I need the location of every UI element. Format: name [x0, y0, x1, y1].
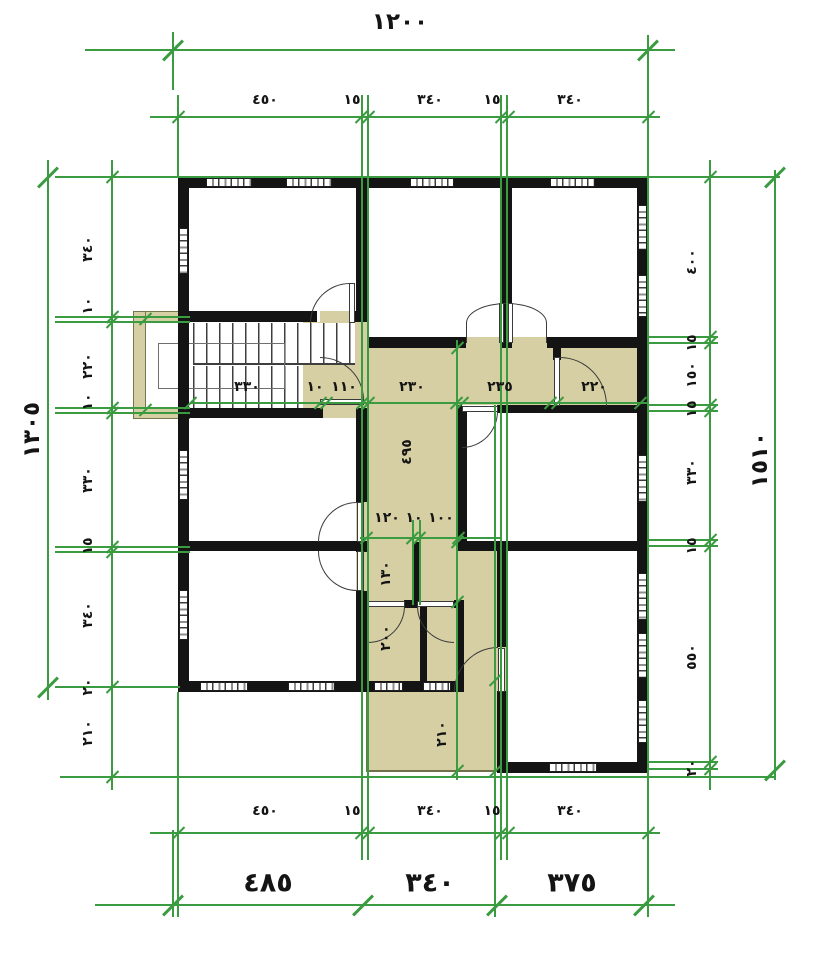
- window-bath-2: [423, 682, 451, 691]
- dim-label: ٢١٠: [80, 720, 96, 746]
- gridline-x648: [647, 35, 649, 917]
- wall-roomC-bottom: [456, 541, 637, 551]
- dim-label: ١٥٠: [684, 362, 700, 388]
- dim-label: ١١٠: [331, 379, 357, 395]
- dim-label: ١٥: [483, 92, 500, 108]
- dim-label: ١٠: [306, 379, 323, 395]
- dim-label: ١٣٠: [378, 561, 394, 587]
- window-left-2: [179, 450, 188, 500]
- dim-label: ٣٤٠: [80, 602, 96, 628]
- extline-left-2a: [55, 407, 190, 409]
- dimline-right-total: [774, 170, 776, 780]
- porch-outline-bottom: [366, 770, 497, 772]
- dim-label: ٣٣٠: [80, 467, 96, 493]
- extline-left-2b: [55, 412, 190, 414]
- dim-label: ١٥: [483, 803, 500, 819]
- dim-label: ٢٣٥: [487, 379, 513, 395]
- dim-label: ١٠: [80, 393, 96, 410]
- dim-label: ٢٠: [684, 759, 700, 776]
- dim-label-left-total: ١٣٠٥: [19, 402, 45, 458]
- window-right-1: [638, 205, 647, 250]
- dim-label-bottom-total: ٣٧٥: [547, 868, 596, 899]
- wall-roomAB-divider: [189, 541, 356, 551]
- door-arc-room1: [310, 283, 350, 323]
- gridline-x507: [506, 95, 508, 860]
- window-right-3: [638, 455, 647, 502]
- dim-label: ٣٤٠: [557, 803, 583, 819]
- dim-label: ١٥: [343, 803, 360, 819]
- window-top-4: [550, 178, 595, 187]
- door-arc-roomB: [318, 551, 357, 591]
- door-arc-roomC: [462, 411, 498, 448]
- window-bottom-1: [200, 682, 248, 691]
- dim-label: ١٠: [80, 297, 96, 314]
- window-top-2: [286, 178, 332, 187]
- dim-label: ١٥: [684, 537, 700, 554]
- wall-stairhall-bottom: [189, 408, 323, 418]
- door-arc-roomA: [318, 502, 357, 542]
- dim-label: ٣٤٠: [417, 92, 443, 108]
- dimline-bottom-total: [95, 904, 675, 906]
- dim-label: ٢٢٠: [581, 379, 607, 395]
- window-right-5: [638, 633, 647, 678]
- dim-label: ٤٠٠: [684, 249, 700, 275]
- dim-label-hall-length: ٤٩٥: [399, 439, 415, 465]
- window-bottom-2: [288, 682, 335, 691]
- dim-label: ٢٠: [80, 678, 96, 695]
- dim-label: ٢٠٠: [378, 625, 394, 651]
- window-top-3: [410, 178, 454, 187]
- floor-plan-canvas: ١٢٠٠ ٤٥٠ ١٥ ٣٤٠ ١٥ ٣٤٠ ١٣٠٥ ٣٤٠ ١٠ ٢٢٠ ١…: [0, 0, 828, 963]
- window-roomD-bottom: [549, 763, 597, 772]
- dim-label: ٤٥٠: [252, 803, 278, 819]
- dimline-corridor: [190, 402, 648, 404]
- dim-label: ١٥: [80, 537, 96, 554]
- dim-label: ٢٣٠: [399, 379, 425, 395]
- dim-label: ١٥: [343, 92, 360, 108]
- dim-label: ١٥: [684, 400, 700, 417]
- gridline-x178-top: [177, 95, 179, 177]
- wall-room1-bottom-stub: [353, 311, 367, 322]
- dim-label: ٣٤٠: [417, 803, 443, 819]
- dim-label-right-total: ١٥١٠: [747, 432, 773, 488]
- door-leaf-double-b: [508, 303, 513, 343]
- extline-left-3b: [55, 551, 190, 553]
- window-bath-1: [374, 682, 403, 691]
- left-landing-side: [133, 311, 146, 419]
- dimline-bottom-row: [150, 832, 660, 834]
- dim-label: ٤٥٠: [252, 92, 278, 108]
- corridor-east-fill: [456, 348, 637, 405]
- dim-label-bottom-total: ٤٨٥: [243, 868, 292, 899]
- dim-label: ٣٣٠: [234, 379, 260, 395]
- window-left-1: [179, 228, 188, 274]
- dim-label: ١٠٠: [428, 510, 454, 526]
- extline-left-1a: [55, 316, 190, 318]
- extline-left-1b: [55, 321, 190, 323]
- dim-label: ١٠: [405, 510, 422, 526]
- dim-label: ٣٣٠: [684, 459, 700, 485]
- dimline-subhall: [360, 537, 500, 539]
- gridline-x413-short: [412, 520, 414, 605]
- extline-left-4: [55, 686, 180, 688]
- wall-roomC-top: [497, 405, 637, 413]
- wall-corridor-top-a: [368, 337, 466, 348]
- dimline-right-col: [709, 160, 711, 790]
- gridline-x173-top: [172, 32, 174, 90]
- dim-label: ٥٥٠: [684, 644, 700, 670]
- wall-bath-top-stub-a: [404, 600, 418, 608]
- dim-label: ٣٤٠: [557, 92, 583, 108]
- wall-room1-bottom: [189, 311, 317, 322]
- dim-label: ٣٤٠: [80, 236, 96, 262]
- gridline-x178-bottom: [177, 692, 179, 917]
- gridline-x501: [500, 95, 502, 860]
- wall-corridor-top-b: [547, 337, 637, 348]
- gridline-x362: [361, 95, 363, 860]
- dim-label: ٢٢٠: [80, 353, 96, 379]
- gridline-x368: [367, 95, 369, 860]
- dimline-top-row: [150, 116, 660, 118]
- dimline-topwall: [55, 176, 780, 178]
- dimline-left-total: [47, 160, 49, 700]
- window-top-1: [206, 178, 252, 187]
- dimline-left-col: [111, 160, 113, 790]
- gridline-x419-short: [419, 520, 421, 605]
- window-right-2: [638, 275, 647, 317]
- porch-fill: [366, 692, 497, 772]
- window-left-3: [179, 590, 188, 640]
- dim-label: ١٢٠: [374, 510, 400, 526]
- dim-label-porch: ٢١٠: [434, 721, 450, 747]
- window-right-4: [638, 573, 647, 620]
- dim-label: ١٥: [684, 334, 700, 351]
- dimline-lower-edge: [60, 776, 775, 778]
- window-right-6: [638, 700, 647, 743]
- extline-left-3a: [55, 546, 190, 548]
- dim-label-bottom-total: ٣٤٠: [405, 868, 454, 899]
- dim-label-top-total: ١٢٠٠: [372, 9, 428, 35]
